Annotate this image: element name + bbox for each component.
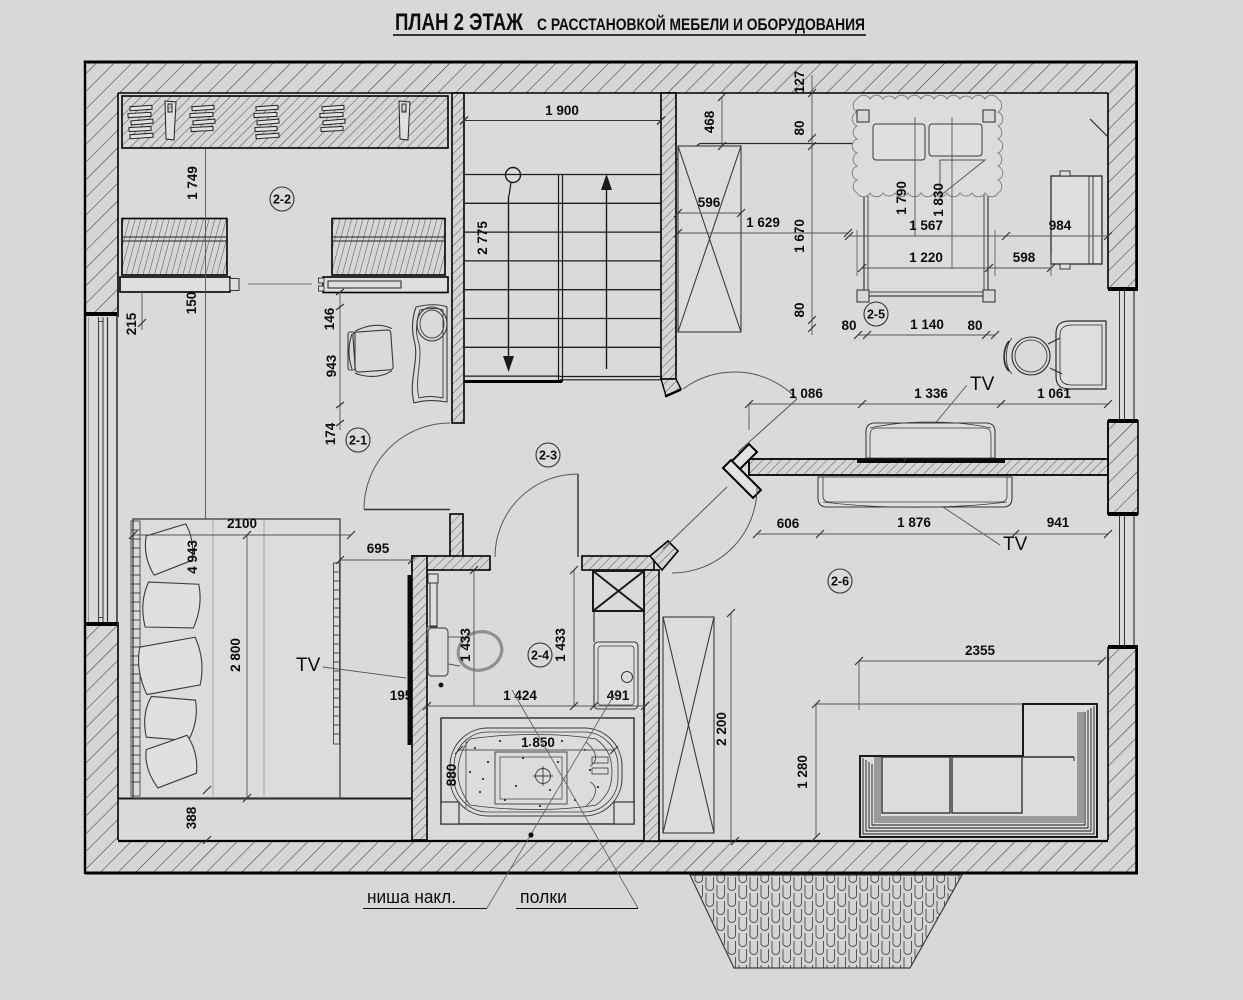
- svg-text:941: 941: [1047, 515, 1070, 530]
- svg-text:943: 943: [324, 354, 339, 377]
- svg-text:4 943: 4 943: [185, 540, 200, 574]
- svg-text:1 220: 1 220: [909, 250, 943, 265]
- svg-text:1 336: 1 336: [914, 386, 948, 401]
- svg-text:80: 80: [792, 120, 807, 135]
- svg-text:2 775: 2 775: [475, 221, 490, 255]
- svg-text:1 749: 1 749: [185, 166, 200, 200]
- svg-text:ПЛАН 2 ЭТАЖ: ПЛАН 2 ЭТАЖ: [395, 9, 523, 36]
- svg-text:80: 80: [967, 318, 982, 333]
- svg-text:2-6: 2-6: [831, 575, 849, 589]
- svg-text:195: 195: [390, 688, 413, 703]
- svg-text:150: 150: [184, 292, 199, 315]
- svg-text:1 433: 1 433: [553, 628, 568, 662]
- svg-text:146: 146: [322, 307, 337, 330]
- svg-text:2100: 2100: [227, 516, 257, 531]
- svg-text:80: 80: [792, 302, 807, 317]
- svg-text:388: 388: [184, 806, 199, 829]
- svg-text:880: 880: [444, 764, 459, 787]
- svg-text:1 830: 1 830: [931, 183, 946, 217]
- svg-text:1 567: 1 567: [909, 218, 943, 233]
- svg-text:С РАССТАНОВКОЙ МЕБЕЛИ И ОБОРУД: С РАССТАНОВКОЙ МЕБЕЛИ И ОБОРУДОВАНИЯ: [537, 15, 865, 34]
- svg-text:1 900: 1 900: [545, 103, 579, 118]
- svg-text:2-4: 2-4: [531, 649, 549, 663]
- svg-text:174: 174: [323, 422, 338, 445]
- svg-text:2-1: 2-1: [349, 434, 367, 448]
- svg-text:606: 606: [777, 516, 800, 531]
- svg-text:1 424: 1 424: [503, 688, 537, 703]
- svg-text:1 140: 1 140: [910, 317, 944, 332]
- svg-text:1 280: 1 280: [795, 755, 810, 789]
- svg-text:1 629: 1 629: [746, 215, 780, 230]
- svg-text:1 790: 1 790: [894, 181, 909, 215]
- svg-text:2 200: 2 200: [714, 712, 729, 746]
- svg-text:2-2: 2-2: [273, 193, 291, 207]
- svg-text:1 433: 1 433: [458, 628, 473, 662]
- svg-text:2355: 2355: [965, 643, 996, 658]
- svg-text:80: 80: [841, 318, 856, 333]
- svg-text:ниша накл.: ниша накл.: [367, 886, 456, 907]
- svg-text:1 061: 1 061: [1037, 386, 1071, 401]
- svg-text:1 876: 1 876: [897, 515, 931, 530]
- svg-text:127: 127: [792, 71, 807, 94]
- svg-text:1 850: 1 850: [521, 735, 555, 750]
- svg-text:596: 596: [698, 195, 721, 210]
- svg-text:1 086: 1 086: [789, 386, 823, 401]
- svg-text:2-3: 2-3: [539, 449, 557, 463]
- svg-text:215: 215: [124, 312, 139, 335]
- svg-text:TV: TV: [970, 374, 995, 395]
- svg-text:695: 695: [367, 541, 390, 556]
- svg-text:TV: TV: [296, 655, 321, 676]
- svg-text:TV: TV: [1003, 534, 1028, 555]
- svg-text:984: 984: [1049, 218, 1072, 233]
- svg-text:полки: полки: [520, 886, 567, 907]
- svg-text:1 670: 1 670: [792, 219, 807, 253]
- svg-text:2 800: 2 800: [228, 638, 243, 672]
- svg-text:468: 468: [702, 110, 717, 133]
- svg-text:598: 598: [1013, 250, 1036, 265]
- svg-text:2-5: 2-5: [867, 308, 885, 322]
